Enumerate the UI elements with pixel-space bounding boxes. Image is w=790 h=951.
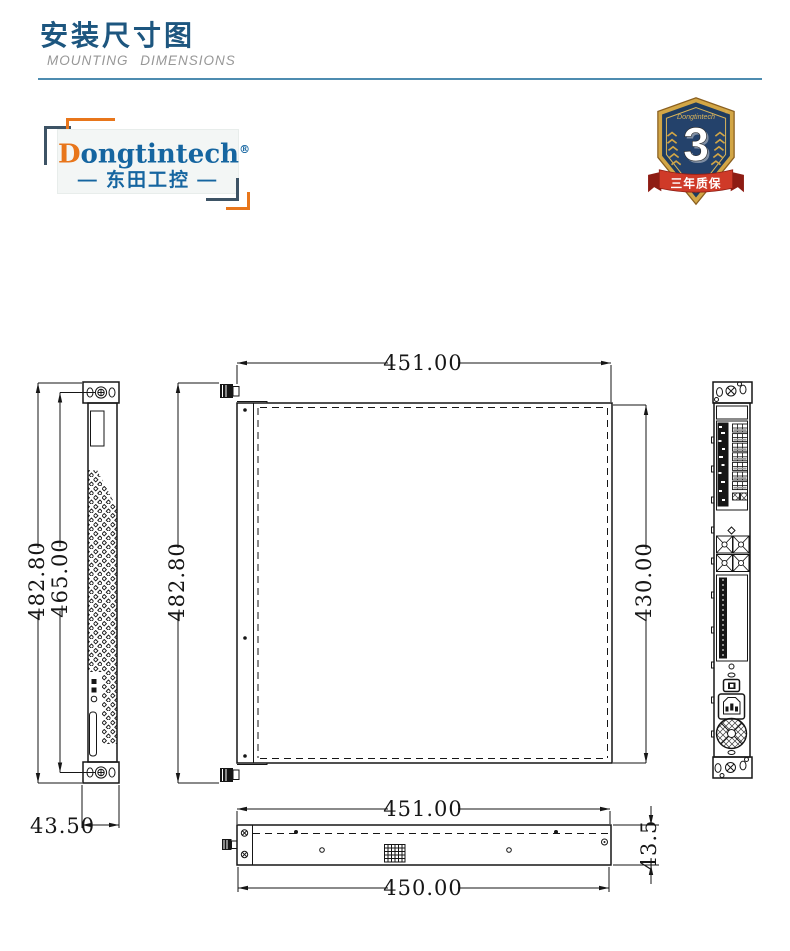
dim-front-width: 43.50 bbox=[30, 814, 95, 838]
dim-top-width: 451.00 bbox=[383, 351, 462, 375]
top-view-outline bbox=[237, 403, 612, 763]
dim-top-overall-depth: 482.80 bbox=[165, 542, 189, 621]
logo-bracket-bottom-right-orange bbox=[226, 192, 250, 210]
badge-number: 3 bbox=[683, 119, 709, 171]
front-port-slot bbox=[90, 712, 97, 756]
top-view-front-ear-bottom bbox=[220, 768, 239, 782]
rear-power-inlet bbox=[719, 694, 745, 719]
rear-view bbox=[712, 382, 753, 778]
dim-side-bottom-width: 450.00 bbox=[383, 876, 462, 900]
registered-mark-icon: ® bbox=[239, 143, 250, 156]
front-display-cutout bbox=[91, 411, 105, 446]
dim-side-height: 43.5 bbox=[637, 820, 661, 871]
side-view bbox=[222, 825, 611, 865]
dim-top-body-depth: 430.00 bbox=[632, 542, 656, 621]
front-bottom-ear-screw bbox=[95, 767, 106, 778]
page-subtitle: MOUNTING DIMENSIONS bbox=[47, 53, 236, 68]
dim-side-top-width: 451.00 bbox=[383, 797, 462, 821]
rear-power-switch bbox=[724, 680, 740, 692]
badge-ribbon-text: 三年质保 bbox=[671, 177, 722, 191]
page-title: 安装尺寸图 bbox=[40, 14, 195, 54]
side-vent-grille bbox=[385, 845, 406, 863]
top-view-dimensions: 451.00 482.80 430.00 bbox=[165, 351, 656, 783]
dim-front-overall-height: 482.80 bbox=[25, 541, 49, 620]
front-view bbox=[83, 382, 119, 783]
rear-marker-diamond bbox=[728, 527, 735, 534]
front-top-ear-screw bbox=[95, 387, 106, 398]
side-view-dimensions: 451.00 450.00 43.5 bbox=[237, 797, 661, 900]
rear-fan-grid bbox=[717, 536, 750, 572]
front-vent-holes bbox=[88, 470, 117, 744]
top-view bbox=[220, 384, 612, 782]
header-divider bbox=[38, 78, 762, 80]
brand-name: Dongtintech® bbox=[58, 136, 238, 169]
top-view-front-ear-top bbox=[220, 384, 239, 398]
dim-front-inner-height: 465.00 bbox=[48, 538, 72, 617]
warranty-badge: Dongtintech ® 3 3 三年质保 bbox=[645, 96, 747, 216]
rear-expansion-slot bbox=[717, 575, 748, 661]
rear-io-connectors bbox=[717, 421, 748, 510]
side-front-screws bbox=[241, 830, 247, 858]
front-led-indicators bbox=[91, 679, 97, 702]
side-front-connector bbox=[222, 839, 237, 850]
rear-psu-fan bbox=[717, 719, 747, 749]
brand-rest: ongtintech bbox=[81, 140, 240, 170]
brand-initial: D bbox=[58, 140, 81, 170]
dash-left: — bbox=[78, 170, 99, 191]
